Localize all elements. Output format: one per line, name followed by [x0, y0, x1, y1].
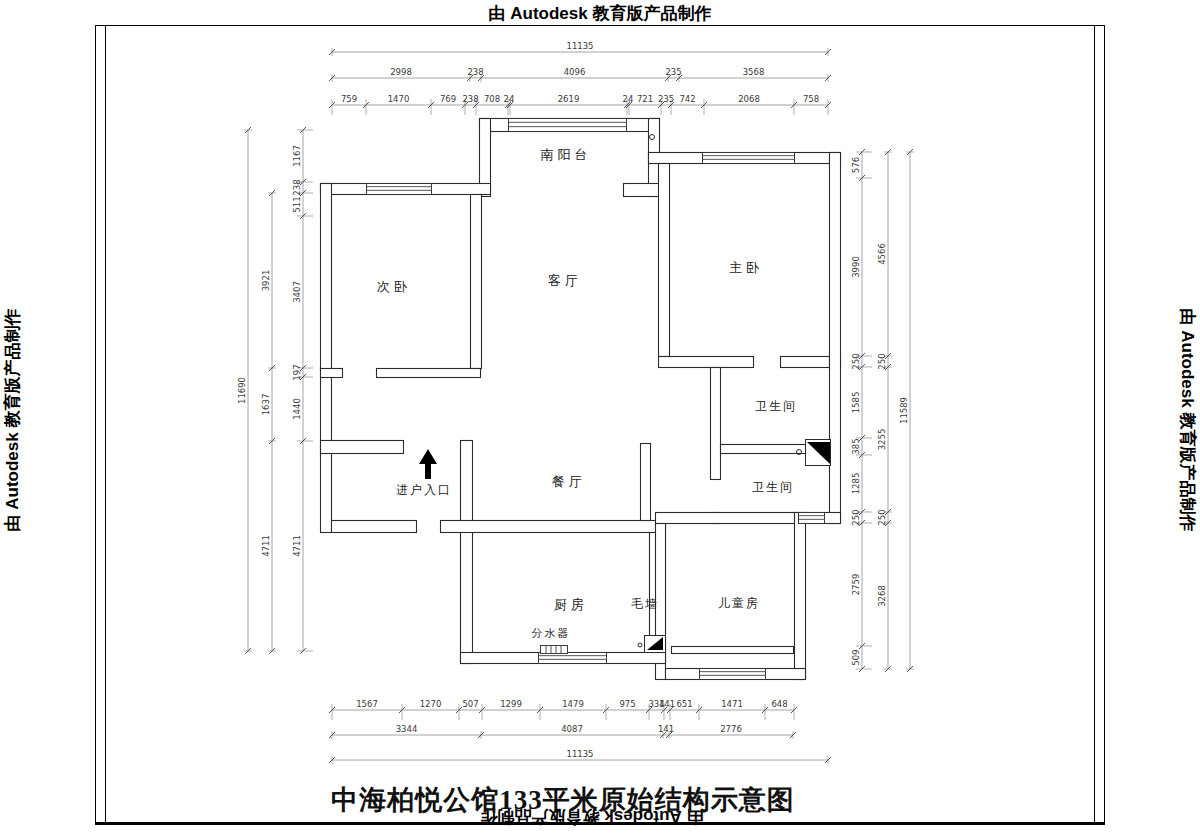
dimension-label: 4087	[561, 724, 583, 734]
dimension-label: 975	[619, 699, 635, 709]
room-label-bathroom-2: 卫生间	[752, 479, 794, 496]
dimension-label: 2776	[720, 724, 742, 734]
dimension-label: 758	[803, 94, 819, 104]
dimension-label: 1285	[851, 473, 861, 495]
dimension-label: 1471	[721, 699, 743, 709]
dimension-label: 250	[877, 353, 887, 369]
dimension-label: 1440	[292, 398, 302, 420]
dimension-label: 651	[676, 699, 692, 709]
entry-arrow-icon	[419, 449, 437, 479]
dimension-label: 238	[467, 67, 483, 77]
room-label-water-manifold: 分水器	[532, 626, 571, 641]
dimension-label: 11690	[237, 377, 247, 404]
dimension-label: 24	[504, 94, 515, 104]
dimension-label: 648	[771, 699, 787, 709]
window	[539, 653, 607, 664]
wall-segment	[672, 647, 794, 654]
dimension-label: 1479	[562, 699, 584, 709]
dimension-label: 1470	[388, 94, 410, 104]
dimension-label: 2759	[851, 574, 861, 596]
dimension-label: 769	[440, 94, 456, 104]
wall-segment	[721, 445, 808, 454]
room-label-master-bedroom: 主卧	[729, 259, 763, 277]
window	[703, 153, 795, 164]
dimension-label: 4096	[564, 67, 586, 77]
dimension-label: 235	[665, 67, 681, 77]
dimension-label: 4566	[877, 243, 887, 265]
dimension-label: 141	[658, 724, 674, 734]
dimension-label: 3344	[396, 724, 418, 734]
wall-segment	[659, 357, 754, 368]
wall-segment	[377, 369, 481, 378]
wall-segment	[471, 195, 482, 369]
room-label-dining-room: 餐厅	[552, 473, 586, 491]
wall-segment	[641, 444, 651, 521]
dimension-label: 250	[851, 509, 861, 525]
dimension-label: 2619	[558, 94, 580, 104]
dimension-label: 742	[679, 94, 695, 104]
sheet-title: 中海柏悦公馆133平米原始结构示意图	[331, 782, 795, 818]
wall-segment	[659, 164, 670, 357]
dimension-label: 11589	[899, 397, 909, 424]
dimension-label: 4711	[261, 535, 271, 557]
dimension-label: 24	[623, 94, 634, 104]
dimension-label: 3990	[851, 256, 861, 278]
wall-segment	[830, 153, 841, 524]
wall-segment	[441, 521, 666, 533]
room-label-living-room: 客厅	[548, 272, 582, 290]
wall-segment	[321, 369, 343, 378]
dimension-label: 250	[851, 353, 861, 369]
floor-plan: 1113529982384096235356875914707692387082…	[0, 0, 1200, 833]
wall-segment	[624, 184, 660, 197]
drain-circle-icon	[638, 643, 642, 647]
dimension-label: 759	[341, 94, 357, 104]
room-label-children-room: 儿童房	[718, 595, 760, 612]
dimension-label: 3407	[292, 281, 302, 303]
dimension-label: 509	[851, 649, 861, 665]
dimension-label: 2998	[390, 67, 412, 77]
dimension-label: 141	[659, 699, 675, 709]
dimension-label: 250	[877, 509, 887, 525]
dimension-label: 1567	[356, 699, 378, 709]
dimension-label: 1270	[420, 699, 442, 709]
room-label-kitchen: 厨房	[554, 596, 588, 614]
dimension-label: 708	[484, 94, 500, 104]
room-label-south-balcony: 南阳台	[541, 146, 592, 164]
dimension-label: 2068	[738, 94, 760, 104]
wall-segment	[321, 184, 332, 533]
dimension-label: 3921	[261, 270, 271, 292]
dimension-label: 1299	[500, 699, 522, 709]
cad-sheet: 由 Autodesk 教育版产品制作 由 Autodesk 教育版产品制作 由 …	[0, 0, 1200, 833]
dimension-label: 721	[637, 94, 653, 104]
dimension-label: 4711	[292, 535, 302, 557]
wall-segment	[461, 441, 473, 664]
dimension-label: 238	[292, 179, 302, 195]
window	[799, 513, 825, 524]
dimension-label: 1167	[292, 145, 302, 167]
dimension-label: 1637	[261, 394, 271, 416]
dimension-label: 511	[292, 196, 302, 212]
window	[367, 184, 432, 195]
dimension-label: 11135	[566, 41, 593, 51]
window	[700, 669, 766, 680]
dimension-label: 197	[292, 364, 302, 380]
dimension-label: 1585	[851, 392, 861, 414]
dimension-label: 576	[851, 157, 861, 173]
room-label-rough-wall: 毛墙	[631, 596, 659, 613]
wall-segment	[711, 368, 721, 480]
water-manifold-icon	[541, 646, 568, 654]
dimension-label: 11135	[566, 749, 593, 759]
wall-segment	[332, 521, 417, 533]
dimension-label: 235	[658, 94, 674, 104]
room-label-bathroom-1: 卫生间	[755, 398, 797, 415]
window	[509, 119, 627, 132]
wall-segment	[321, 441, 404, 454]
wall-segment	[795, 513, 806, 680]
dimension-label: 3255	[877, 429, 887, 451]
dimension-label: 238	[462, 94, 478, 104]
dimension-label: 385	[851, 438, 861, 454]
room-label-secondary-bedroom: 次卧	[377, 278, 411, 296]
dimension-label: 507	[462, 699, 478, 709]
dimension-label: 3268	[877, 585, 887, 607]
dimension-label: 3568	[743, 67, 765, 77]
room-label-entrance: 进户入口	[396, 482, 452, 499]
